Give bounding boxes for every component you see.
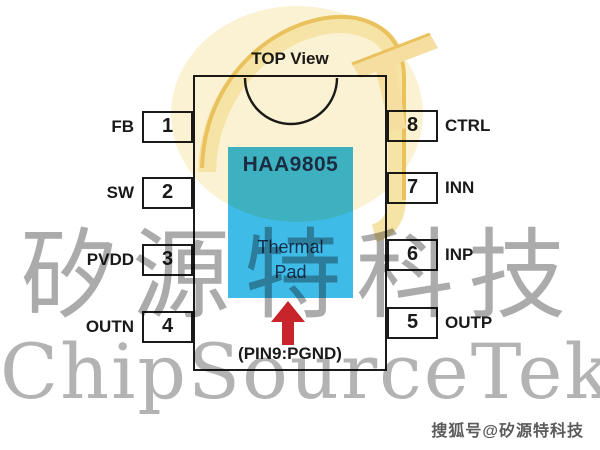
pin-label-outn: OUTN (38, 311, 134, 343)
chip-notch-icon (243, 76, 339, 128)
pin-box-5: 5 (387, 307, 438, 339)
pgnd-arrow-icon (271, 301, 305, 345)
pin-label-fb: FB (38, 111, 134, 143)
pin-label-outp: OUTP (445, 307, 555, 339)
pin-number-6: 6 (407, 243, 418, 265)
part-number: HAA9805 (228, 153, 353, 177)
sohu-watermark: 搜狐号@矽源特科技 (431, 417, 584, 441)
pin-number-1: 1 (162, 115, 173, 137)
thermal-pad-label-line2: Pad (228, 262, 353, 283)
thermal-pad: HAA9805 Thermal Pad (228, 147, 353, 298)
pin-box-3: 3 (142, 244, 193, 276)
pin-number-2: 2 (162, 181, 173, 203)
pin-label-sw: SW (38, 177, 134, 209)
pin-box-2: 2 (142, 177, 193, 209)
pin-box-7: 7 (387, 172, 438, 204)
pin-number-5: 5 (407, 311, 418, 333)
thermal-pad-label-line1: Thermal (228, 237, 353, 258)
pin-number-8: 8 (407, 114, 418, 136)
pin-label-ctrl: CTRL (445, 110, 555, 142)
pin-label-pvdd: PVDD (38, 244, 134, 276)
pgnd-note: (PIN9:PGND) (183, 344, 397, 364)
pin-box-1: 1 (142, 111, 193, 143)
pin-label-inn: INN (445, 172, 555, 204)
pin-box-6: 6 (387, 239, 438, 271)
pin-number-3: 3 (162, 248, 173, 270)
diagram-title: TOP View (193, 49, 387, 69)
pin-box-8: 8 (387, 110, 438, 142)
pin-number-4: 4 (162, 315, 173, 337)
pin-number-7: 7 (407, 176, 418, 198)
pin-label-inp: INP (445, 239, 555, 271)
pin-box-4: 4 (142, 311, 193, 343)
pinout-diagram: TOP View FB 1 SW 2 PVDD 3 OUTN 4 8 CTRL … (0, 0, 600, 450)
